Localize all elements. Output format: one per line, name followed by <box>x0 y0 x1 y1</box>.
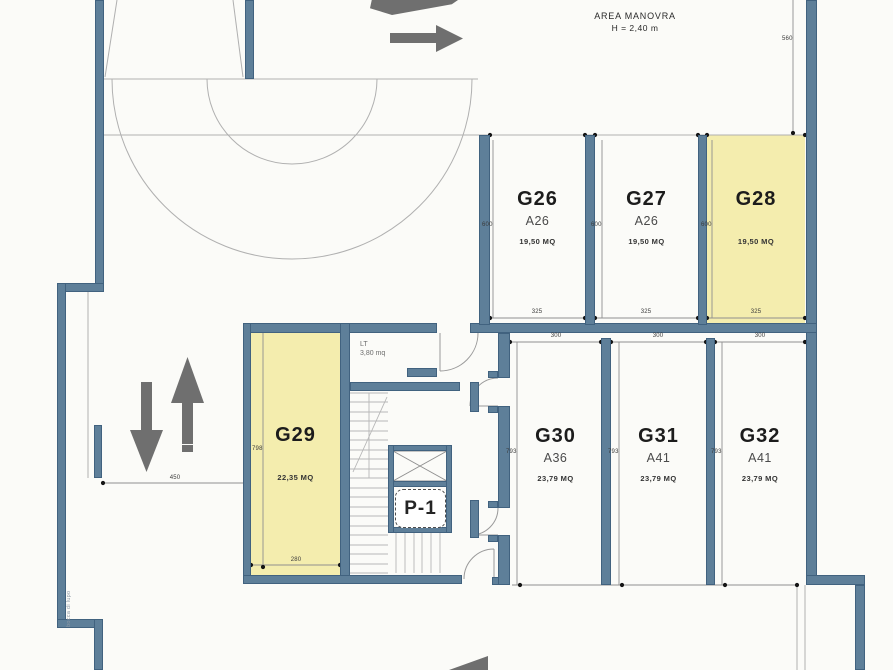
garage-type <box>251 446 340 468</box>
dim-560: 560 <box>782 36 793 43</box>
garage-g30: G30 A36 23,79 MQ <box>510 342 601 484</box>
wall-sep-g30-g31 <box>601 338 611 585</box>
wall-right-outer <box>806 0 817 576</box>
wall-elevator-right <box>446 445 452 533</box>
dim-600-g27: 600 <box>591 222 602 229</box>
garage-id: G31 <box>611 425 706 447</box>
elevator-label: P-1 <box>404 498 437 520</box>
garage-g31: G31 A41 23,79 MQ <box>611 342 706 484</box>
wall-left-mid <box>57 283 66 628</box>
wall-jamb-1 <box>488 371 498 378</box>
area-manovra-note: AREA MANOVRA H = 2,40 m <box>559 10 711 34</box>
garage-area: 23,79 MQ <box>715 474 805 484</box>
wall-left-bottom <box>94 619 103 670</box>
elevator-cab: P-1 <box>395 489 446 528</box>
dim-280-g29: 280 <box>291 557 302 564</box>
garage-type <box>707 210 805 232</box>
wall-elevator-left <box>388 445 394 533</box>
wall-left-top <box>95 0 104 291</box>
garage-area: 23,79 MQ <box>510 474 601 484</box>
wall-right-step <box>806 575 865 585</box>
garage-id: G30 <box>510 425 601 447</box>
wall-mid-band-right <box>470 323 817 333</box>
dim-798-g29: 798 <box>252 446 263 453</box>
wall-sep-g31-g32 <box>706 338 715 585</box>
garage-g29: G29 22,35 MQ <box>251 333 340 483</box>
dim-793-g30: 793 <box>506 449 517 456</box>
wall-right-bottom <box>855 585 865 670</box>
garage-g26: G26 A26 19,50 MQ <box>490 135 585 247</box>
wall-g29-left <box>243 323 251 583</box>
dim-325-g26: 325 <box>532 309 543 316</box>
technical-room-id: LT <box>360 340 385 349</box>
garage-id: G32 <box>715 425 805 447</box>
garage-type: A41 <box>715 447 805 469</box>
garage-id: G27 <box>595 188 698 210</box>
dim-300-g30: 300 <box>551 333 562 340</box>
wall-corridor-2 <box>498 406 510 508</box>
side-note: bocca di lupo <box>66 567 72 627</box>
wall-g26-left <box>479 135 490 325</box>
garage-type: A26 <box>595 210 698 232</box>
dim-325-g27: 325 <box>641 309 652 316</box>
dim-600-g26: 600 <box>482 222 493 229</box>
arrow-right-shaft <box>390 33 438 43</box>
wall-core-bottom <box>243 575 462 584</box>
technical-room-label: LT 3,80 mq <box>360 340 385 358</box>
wall-jamb-3 <box>488 501 498 508</box>
wall-corridor-1 <box>498 333 510 378</box>
wall-jamb-4 <box>488 535 498 542</box>
garage-type: A41 <box>611 447 706 469</box>
wall-elevator-mid <box>393 481 447 487</box>
wall-sep-g26-g27 <box>585 135 595 325</box>
wall-core-right-2 <box>470 500 479 538</box>
wall-sep-g27-g28 <box>698 135 707 325</box>
wall-ramp-stub <box>245 0 254 79</box>
garage-area: 22,35 MQ <box>251 473 340 483</box>
dim-450-drive: 450 <box>170 475 181 482</box>
garage-id: G26 <box>490 188 585 210</box>
area-manovra-title: AREA MANOVRA <box>559 10 711 22</box>
garage-type: A26 <box>490 210 585 232</box>
wall-core-right-1 <box>470 382 479 412</box>
garage-type: A36 <box>510 447 601 469</box>
arrow-down-shaft <box>141 382 152 432</box>
dim-300-g31: 300 <box>653 333 664 340</box>
dim-300-g32: 300 <box>755 333 766 340</box>
garage-g28: G28 19,50 MQ <box>707 135 805 247</box>
wall-core-left <box>340 323 350 583</box>
wall-lightwell-stub <box>94 425 102 478</box>
floor-plan: P-1 G26 A26 19,50 MQ G27 A26 19,50 MQ G2… <box>0 0 893 670</box>
wall-jamb-2 <box>488 406 498 413</box>
elevator-cross <box>393 451 447 481</box>
arrow-up-notch <box>182 444 193 445</box>
dim-793-g32: 793 <box>711 449 722 456</box>
wall-elevator-top <box>393 445 447 451</box>
wall-lt-bottom <box>350 382 460 391</box>
dim-325-g28: 325 <box>751 309 762 316</box>
garage-area: 23,79 MQ <box>611 474 706 484</box>
garage-id: G28 <box>707 188 805 210</box>
garage-area: 19,50 MQ <box>595 237 698 247</box>
wall-lt-door-jamb <box>407 368 437 377</box>
technical-room-area: 3,80 mq <box>360 349 385 358</box>
garage-g27: G27 A26 19,50 MQ <box>595 135 698 247</box>
wall-corridor-3 <box>498 535 510 585</box>
garage-area: 19,50 MQ <box>707 237 805 247</box>
dim-793-g31: 793 <box>608 449 619 456</box>
garage-id: G29 <box>251 424 340 446</box>
garage-g32: G32 A41 23,79 MQ <box>715 342 805 484</box>
garage-area: 19,50 MQ <box>490 237 585 247</box>
area-manovra-height: H = 2,40 m <box>559 22 711 34</box>
dim-600-g28: 600 <box>701 222 712 229</box>
